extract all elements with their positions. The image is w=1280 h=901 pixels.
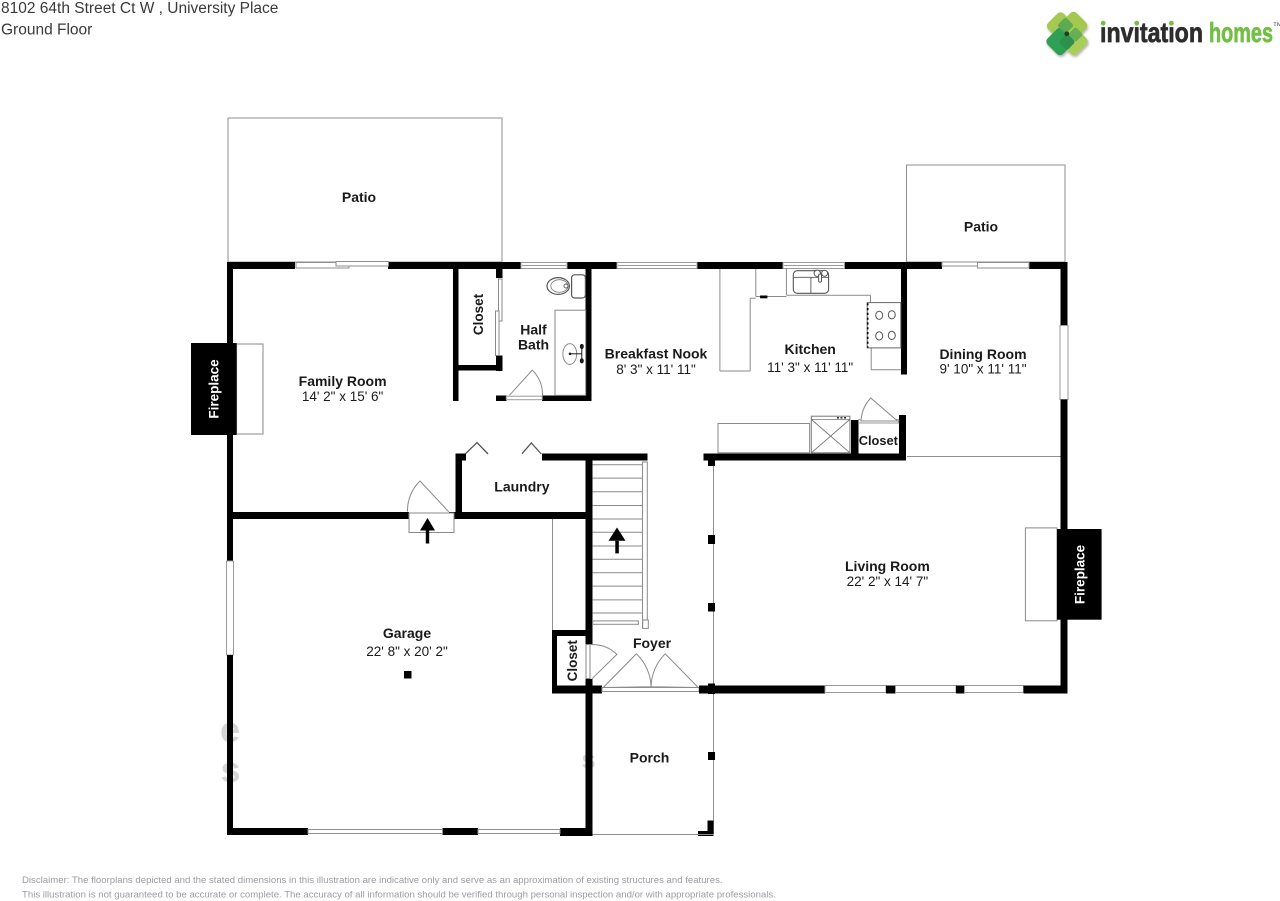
svg-text:This illustration is not guara: This illustration is not guaranteed to b… <box>22 889 776 900</box>
svg-text:Closet: Closet <box>859 433 899 448</box>
svg-text:Family Room: Family Room <box>299 373 387 389</box>
svg-text:Half: Half <box>520 321 547 337</box>
svg-text:8102 64th Street Ct W , Univer: 8102 64th Street Ct W , University Place <box>1 0 278 17</box>
svg-text:Patio: Patio <box>342 189 376 205</box>
svg-text:™: ™ <box>1273 21 1280 32</box>
svg-text:Fireplace: Fireplace <box>1073 544 1088 604</box>
svg-text:homes: homes <box>1209 17 1273 48</box>
svg-text:Ground Floor: Ground Floor <box>1 22 92 39</box>
svg-text:9' 10" x 11' 11": 9' 10" x 11' 11" <box>939 362 1026 377</box>
svg-text:14' 2" x 15' 6": 14' 2" x 15' 6" <box>302 389 384 404</box>
svg-text:Bath: Bath <box>518 337 549 353</box>
svg-text:Garage: Garage <box>383 625 431 641</box>
svg-text:Laundry: Laundry <box>494 478 549 494</box>
svg-text:Disclaimer: The floorplans dep: Disclaimer: The floorplans depicted and … <box>22 875 723 886</box>
svg-text:Kitchen: Kitchen <box>785 341 836 357</box>
svg-text:22' 8" x 20' 2": 22' 8" x 20' 2" <box>366 644 448 659</box>
svg-text:Closet: Closet <box>565 640 580 682</box>
svg-text:Closet: Closet <box>471 293 486 335</box>
svg-text:Patio: Patio <box>964 219 998 235</box>
svg-text:ınvıtatıon: ınvıtatıon <box>1100 17 1203 48</box>
svg-text:Breakfast Nook: Breakfast Nook <box>605 346 708 362</box>
svg-text:Living Room: Living Room <box>845 558 930 574</box>
svg-text:Dining Room: Dining Room <box>939 346 1026 362</box>
svg-text:Porch: Porch <box>630 750 670 766</box>
svg-text:Foyer: Foyer <box>633 635 672 651</box>
svg-text:8' 3" x 11' 11": 8' 3" x 11' 11" <box>616 362 696 377</box>
svg-text:11' 3" x 11' 11": 11' 3" x 11' 11" <box>767 360 853 375</box>
svg-text:22' 2" x 14' 7": 22' 2" x 14' 7" <box>847 574 929 589</box>
svg-text:Fireplace: Fireplace <box>207 359 222 419</box>
